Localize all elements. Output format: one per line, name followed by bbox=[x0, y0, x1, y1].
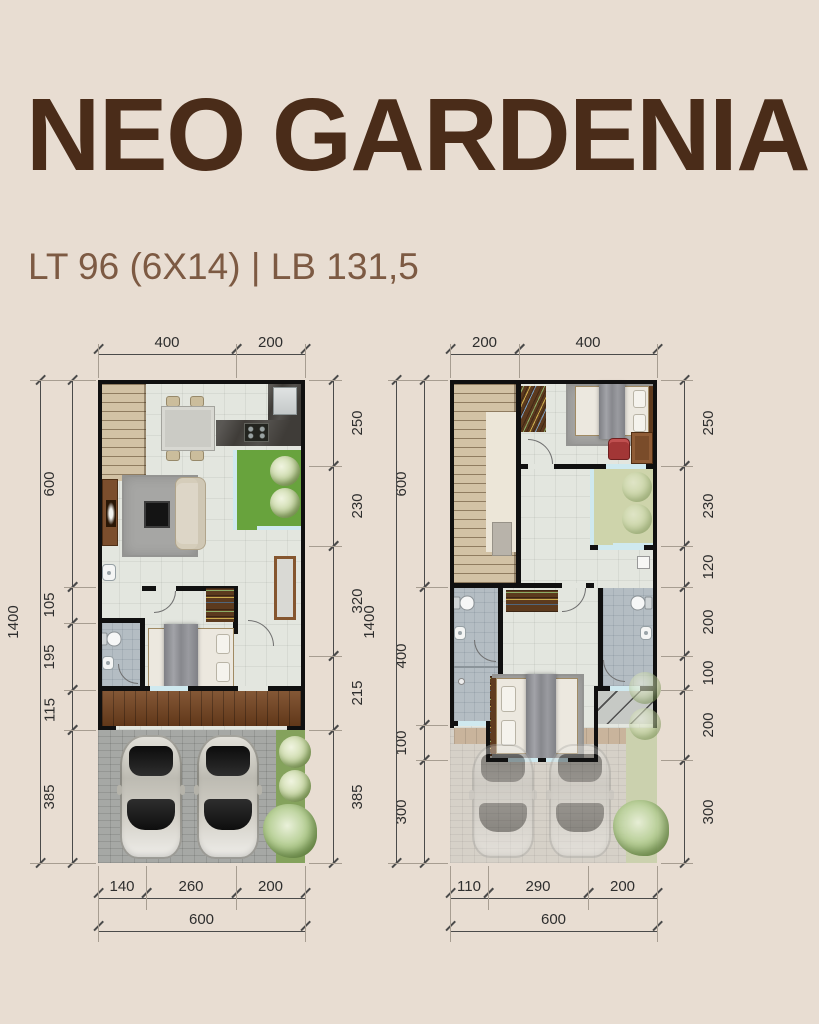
dim-label: 600 bbox=[189, 911, 214, 928]
dim-label: 1400 bbox=[5, 605, 22, 638]
extension-line bbox=[488, 866, 489, 910]
shrub-tree bbox=[629, 672, 661, 704]
car-windshield bbox=[556, 803, 604, 832]
extension-line bbox=[309, 466, 342, 467]
dim-label: 200 bbox=[700, 712, 717, 737]
dim-label: 1400 bbox=[361, 605, 378, 638]
bed bbox=[575, 386, 649, 436]
blanket bbox=[164, 624, 198, 692]
tv bbox=[106, 500, 116, 527]
extension-line bbox=[64, 690, 96, 691]
dim-segment: 230 bbox=[333, 466, 334, 546]
blanket bbox=[599, 383, 625, 439]
dim-segment: 385 bbox=[333, 730, 334, 863]
car bbox=[549, 744, 611, 858]
extension-line bbox=[661, 690, 693, 691]
extension-line bbox=[309, 380, 342, 381]
extension-line bbox=[519, 344, 520, 378]
extension-line bbox=[146, 866, 147, 910]
wall bbox=[98, 380, 102, 730]
dim-segment: 1400 bbox=[40, 380, 41, 863]
wash-basin bbox=[102, 656, 114, 670]
ground-floor-plan bbox=[98, 380, 305, 863]
refrigerator bbox=[273, 387, 297, 415]
dim-segment: 110 bbox=[450, 898, 488, 899]
dining-table bbox=[161, 406, 215, 451]
wall bbox=[140, 618, 145, 690]
extension-line bbox=[661, 587, 693, 588]
pillow bbox=[501, 686, 516, 712]
dim-label: 230 bbox=[349, 493, 366, 518]
car-windshield bbox=[127, 799, 175, 830]
dim-label: 250 bbox=[700, 410, 717, 435]
wall bbox=[301, 380, 305, 730]
staircase bbox=[102, 384, 146, 481]
dim-segment: 1400 bbox=[396, 380, 397, 863]
dim-segment: 600 bbox=[424, 380, 425, 587]
dim-label: 300 bbox=[700, 799, 717, 824]
dim-label: 290 bbox=[525, 878, 550, 895]
extension-line bbox=[661, 863, 693, 864]
dim-segment: 400 bbox=[424, 587, 425, 725]
dim-label: 215 bbox=[349, 680, 366, 705]
extension-line bbox=[30, 380, 96, 381]
car bbox=[472, 744, 534, 858]
dim-segment: 300 bbox=[684, 760, 685, 863]
bed bbox=[148, 628, 234, 688]
dim-label: 400 bbox=[575, 334, 600, 351]
entry-bench bbox=[274, 556, 296, 620]
extension-line bbox=[657, 866, 658, 942]
car bbox=[120, 735, 182, 859]
dim-segment: 385 bbox=[72, 730, 73, 863]
dim-segment: 100 bbox=[424, 725, 425, 760]
dim-segment: 600 bbox=[98, 931, 305, 932]
car-rear-window bbox=[206, 746, 251, 776]
dim-label: 200 bbox=[610, 878, 635, 895]
extension-line bbox=[98, 866, 99, 942]
toilet bbox=[631, 596, 653, 611]
bed bbox=[496, 678, 578, 754]
extension-line bbox=[309, 863, 342, 864]
dim-segment: 250 bbox=[333, 380, 334, 466]
dim-segment: 260 bbox=[146, 898, 236, 899]
dim-segment: 120 bbox=[684, 546, 685, 587]
extension-line bbox=[64, 587, 96, 588]
sofa bbox=[175, 477, 206, 550]
tv-console bbox=[102, 479, 118, 546]
wash-basin bbox=[454, 626, 466, 640]
stove bbox=[244, 423, 269, 442]
car bbox=[197, 735, 259, 859]
bookshelf bbox=[521, 386, 546, 432]
headboard bbox=[491, 678, 496, 754]
divider-line bbox=[454, 666, 498, 668]
dim-segment: 230 bbox=[684, 466, 685, 546]
dim-label: 385 bbox=[349, 784, 366, 809]
dim-segment: 200 bbox=[450, 354, 519, 355]
dim-label: 200 bbox=[258, 334, 283, 351]
dim-segment: 200 bbox=[684, 690, 685, 760]
dim-segment: 600 bbox=[450, 931, 657, 932]
extension-line bbox=[450, 866, 451, 942]
wardrobe bbox=[506, 590, 558, 612]
shrub-tree bbox=[622, 504, 652, 534]
upper-floor-plan bbox=[450, 380, 657, 863]
pillow bbox=[216, 634, 230, 654]
dim-label: 100 bbox=[700, 660, 717, 685]
extension-line bbox=[657, 344, 658, 378]
extension-line bbox=[236, 344, 237, 378]
wall bbox=[450, 380, 454, 728]
car-rear-window bbox=[558, 754, 603, 781]
wash-basin bbox=[640, 626, 652, 640]
extension-line bbox=[98, 344, 99, 378]
extension-line bbox=[309, 546, 342, 547]
shrub-tree bbox=[622, 472, 652, 502]
extension-line bbox=[30, 863, 96, 864]
dim-segment: 200 bbox=[236, 898, 305, 899]
extension-line bbox=[388, 380, 448, 381]
dim-segment: 115 bbox=[72, 690, 73, 730]
dim-label: 195 bbox=[41, 644, 58, 669]
dim-label: 140 bbox=[109, 878, 134, 895]
pillow bbox=[216, 662, 230, 682]
car-windshield bbox=[479, 803, 527, 832]
toilet bbox=[453, 596, 475, 611]
big-tree bbox=[613, 800, 669, 856]
wood-deck bbox=[102, 691, 301, 726]
extension-line bbox=[416, 725, 448, 726]
poster: NEO GARDENIA LT 96 (6X14) | LB 131,5 bbox=[0, 0, 819, 1024]
extension-line bbox=[305, 344, 306, 378]
extension-line bbox=[388, 863, 448, 864]
dim-segment: 100 bbox=[684, 656, 685, 690]
dim-label: 600 bbox=[41, 471, 58, 496]
dim-label: 200 bbox=[258, 878, 283, 895]
red-armchair bbox=[608, 438, 630, 460]
subtitle: LT 96 (6X14) | LB 131,5 bbox=[28, 246, 419, 288]
dim-segment: 600 bbox=[72, 380, 73, 587]
extension-line bbox=[661, 546, 693, 547]
dim-segment: 400 bbox=[519, 354, 657, 355]
dim-label: 110 bbox=[457, 878, 481, 895]
dim-label: 105 bbox=[41, 592, 58, 617]
extension-line bbox=[661, 466, 693, 467]
extension-line bbox=[661, 656, 693, 657]
dining-chair bbox=[166, 450, 180, 461]
extension-line bbox=[309, 730, 342, 731]
dim-segment: 200 bbox=[236, 354, 305, 355]
shrub-tree bbox=[270, 456, 300, 486]
extension-line bbox=[661, 760, 693, 761]
extension-line bbox=[309, 656, 342, 657]
car-windshield bbox=[204, 799, 252, 830]
pillow bbox=[633, 414, 646, 432]
extension-line bbox=[661, 380, 693, 381]
dining-chair bbox=[190, 450, 204, 461]
wall bbox=[450, 380, 657, 384]
dim-segment: 105 bbox=[72, 587, 73, 623]
shrub-tree bbox=[279, 770, 311, 802]
dim-label: 250 bbox=[349, 410, 366, 435]
page-title: NEO GARDENIA bbox=[26, 76, 809, 194]
car-rear-window bbox=[129, 746, 174, 776]
dim-segment: 140 bbox=[98, 898, 146, 899]
storage-box bbox=[492, 522, 512, 556]
wall bbox=[98, 380, 305, 384]
extension-line bbox=[64, 730, 96, 731]
dim-segment: 200 bbox=[588, 898, 657, 899]
car-rear-window bbox=[481, 754, 526, 781]
dim-label: 260 bbox=[178, 878, 203, 895]
window bbox=[598, 545, 644, 550]
dim-segment: 290 bbox=[488, 898, 588, 899]
pillow bbox=[633, 390, 646, 408]
nightstand bbox=[631, 432, 653, 464]
dim-label: 115 bbox=[42, 698, 59, 722]
dim-segment: 250 bbox=[684, 380, 685, 466]
shower-head bbox=[458, 678, 465, 685]
dim-segment: 200 bbox=[684, 587, 685, 656]
dim-label: 230 bbox=[700, 493, 717, 518]
wash-basin bbox=[102, 564, 116, 581]
shrub-tree bbox=[629, 708, 661, 740]
dim-segment: 215 bbox=[333, 656, 334, 730]
extension-line bbox=[305, 866, 306, 942]
dim-label: 400 bbox=[154, 334, 179, 351]
wardrobe bbox=[206, 588, 234, 622]
dim-segment: 195 bbox=[72, 623, 73, 690]
coffee-table bbox=[144, 501, 170, 528]
extension-line bbox=[236, 866, 237, 910]
dim-label: 120 bbox=[700, 554, 717, 579]
pillow bbox=[501, 720, 516, 746]
extension-line bbox=[64, 623, 96, 624]
switch-panel bbox=[637, 556, 650, 569]
dim-segment: 300 bbox=[424, 760, 425, 863]
dim-segment: 400 bbox=[98, 354, 236, 355]
dim-label: 200 bbox=[700, 609, 717, 634]
dim-label: 600 bbox=[541, 911, 566, 928]
shrub-tree bbox=[279, 736, 311, 768]
dim-segment: 320 bbox=[333, 546, 334, 656]
toilet bbox=[100, 632, 122, 647]
extension-line bbox=[588, 866, 589, 910]
shrub-tree bbox=[270, 488, 300, 518]
extension-line bbox=[416, 760, 448, 761]
door-opening bbox=[528, 464, 554, 469]
dim-label: 200 bbox=[472, 334, 497, 351]
extension-line bbox=[416, 587, 448, 588]
big-tree bbox=[263, 804, 317, 858]
dim-label: 385 bbox=[41, 784, 58, 809]
extension-line bbox=[450, 344, 451, 378]
